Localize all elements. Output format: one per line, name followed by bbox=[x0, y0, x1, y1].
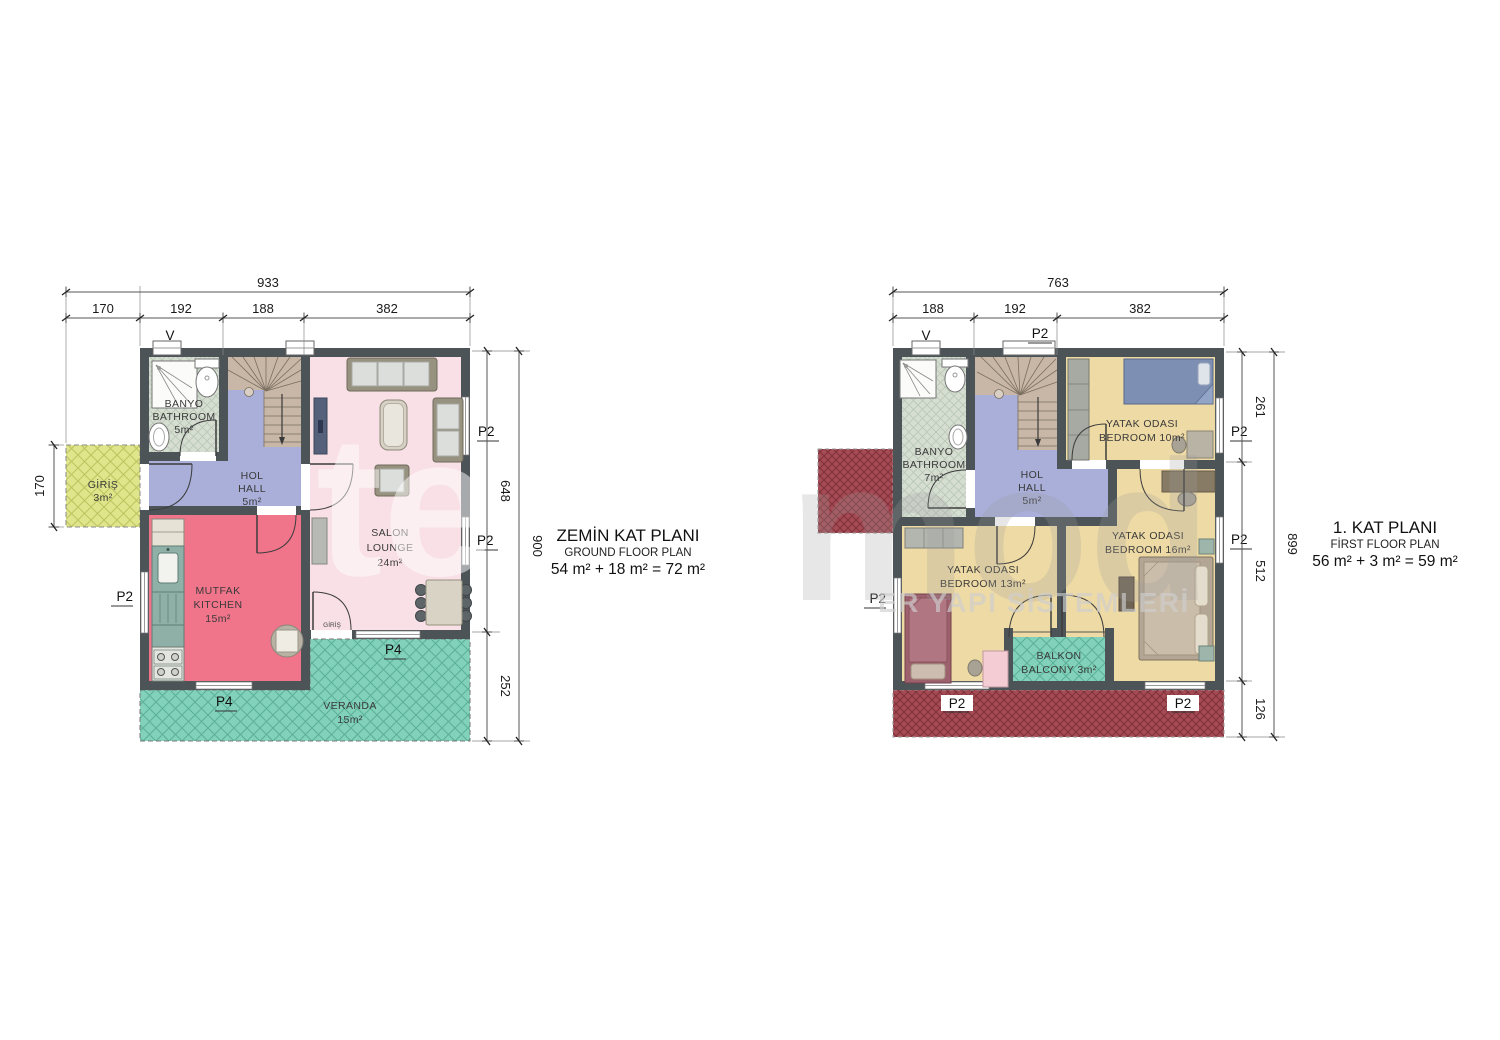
gf-bathroom-label-en: BATHROOM bbox=[152, 411, 215, 423]
ff-area-formula: 56 m² + 3 m² = 59 m² bbox=[1312, 553, 1458, 570]
gf-veranda-label: VERANDA bbox=[323, 700, 377, 712]
gf-veranda-area: 15m² bbox=[337, 714, 363, 726]
ff-window-label-right-lower: P2 bbox=[1231, 532, 1248, 547]
sink-icon bbox=[149, 423, 169, 451]
ff-dim-right-lower: 126 bbox=[1253, 698, 1268, 720]
ff-roof-label-left: P2 bbox=[949, 696, 966, 711]
gf-dim-right-total: 900 bbox=[530, 535, 545, 557]
ff-dim-right-upper: 261 bbox=[1253, 396, 1268, 418]
ff-window-label-top: P2 bbox=[1032, 326, 1049, 341]
gf-kitchen-label-en: KITCHEN bbox=[194, 599, 243, 611]
ff-dim-seg2: 192 bbox=[1004, 301, 1026, 316]
gf-window-label-kitchen: P4 bbox=[216, 694, 233, 709]
gf-dim-seg3: 188 bbox=[252, 301, 274, 316]
gf-window-label-salon: P4 bbox=[385, 642, 402, 657]
gf-entrance-area: 3m² bbox=[93, 492, 112, 504]
ff-dim-right-total: 899 bbox=[1285, 533, 1300, 555]
gf-title-block: ZEMİN KAT PLANI GROUND FLOOR PLAN 54 m² … bbox=[551, 526, 705, 578]
gf-dim-right-lower: 252 bbox=[498, 675, 513, 697]
watermark-left-glyphs: te bbox=[316, 395, 494, 618]
ff-dim-right-middle: 512 bbox=[1253, 560, 1268, 582]
gf-entrance-label: GİRİŞ bbox=[88, 478, 119, 491]
ff-balcony-label-tr: BALKON bbox=[1037, 650, 1082, 662]
shower-icon bbox=[900, 360, 936, 398]
stove-icon bbox=[152, 647, 184, 681]
gf-title: ZEMİN KAT PLANI bbox=[557, 526, 700, 545]
gf-dim-right-upper: 648 bbox=[498, 480, 513, 502]
ff-dim-seg3: 382 bbox=[1129, 301, 1151, 316]
sofa-three-seat bbox=[347, 358, 437, 391]
gf-veranda-door-label: GİRİŞ bbox=[323, 620, 341, 629]
kitchen-counter bbox=[152, 519, 184, 647]
ff-vent-label: V bbox=[921, 328, 930, 343]
ff-title-block: 1. KAT PLANI FİRST FLOOR PLAN 56 m² + 3 … bbox=[1312, 518, 1458, 570]
gf-bathroom-label-tr: BANYO bbox=[165, 398, 204, 410]
gf-bathroom-area: 5m² bbox=[174, 424, 193, 436]
gf-vent-label: V bbox=[165, 328, 174, 343]
gf-dim-seg2: 192 bbox=[170, 301, 192, 316]
ff-subtitle: FİRST FLOOR PLAN bbox=[1330, 538, 1439, 551]
gf-hall-area: 5m² bbox=[242, 496, 261, 508]
watermark-tagline: ER YAPI SİSTEMLERİ bbox=[878, 587, 1190, 618]
gf-hall-label-en: HALL bbox=[238, 483, 266, 495]
gf-area-formula: 54 m² + 18 m² = 72 m² bbox=[551, 561, 705, 578]
ff-balcony-label-en: BALCONY 3m² bbox=[1021, 664, 1096, 676]
ff-dim-seg1: 188 bbox=[922, 301, 944, 316]
gf-dim-seg1: 170 bbox=[92, 301, 114, 316]
gf-dim-seg4: 382 bbox=[376, 301, 398, 316]
gf-kitchen-area: 15m² bbox=[205, 613, 231, 625]
toilet-icon bbox=[195, 359, 219, 397]
kitchen-table bbox=[271, 625, 303, 657]
ff-roof-label-right: P2 bbox=[1175, 696, 1192, 711]
single-bed-blue bbox=[1124, 359, 1213, 404]
gf-dim-total-width: 933 bbox=[257, 275, 279, 290]
ff-title: 1. KAT PLANI bbox=[1333, 518, 1437, 537]
gf-window-label-left: P2 bbox=[116, 589, 133, 604]
watermark: te mod ER YAPI SİSTEMLERİ bbox=[316, 395, 1211, 643]
gf-subtitle: GROUND FLOOR PLAN bbox=[564, 547, 691, 559]
gf-hall-label-tr: HOL bbox=[241, 470, 264, 482]
ff-dim-total-width: 763 bbox=[1047, 275, 1069, 290]
floor-plan-sheet: V P2 P2 P2 P4 P4 GİRİŞ GİRİŞ 3m² BANYO B… bbox=[0, 0, 1500, 1040]
gf-kitchen-label-tr: MUTFAK bbox=[196, 585, 241, 597]
ff-window-label-right-upper: P2 bbox=[1231, 424, 1248, 439]
gf-dim-porch-depth: 170 bbox=[32, 475, 47, 497]
